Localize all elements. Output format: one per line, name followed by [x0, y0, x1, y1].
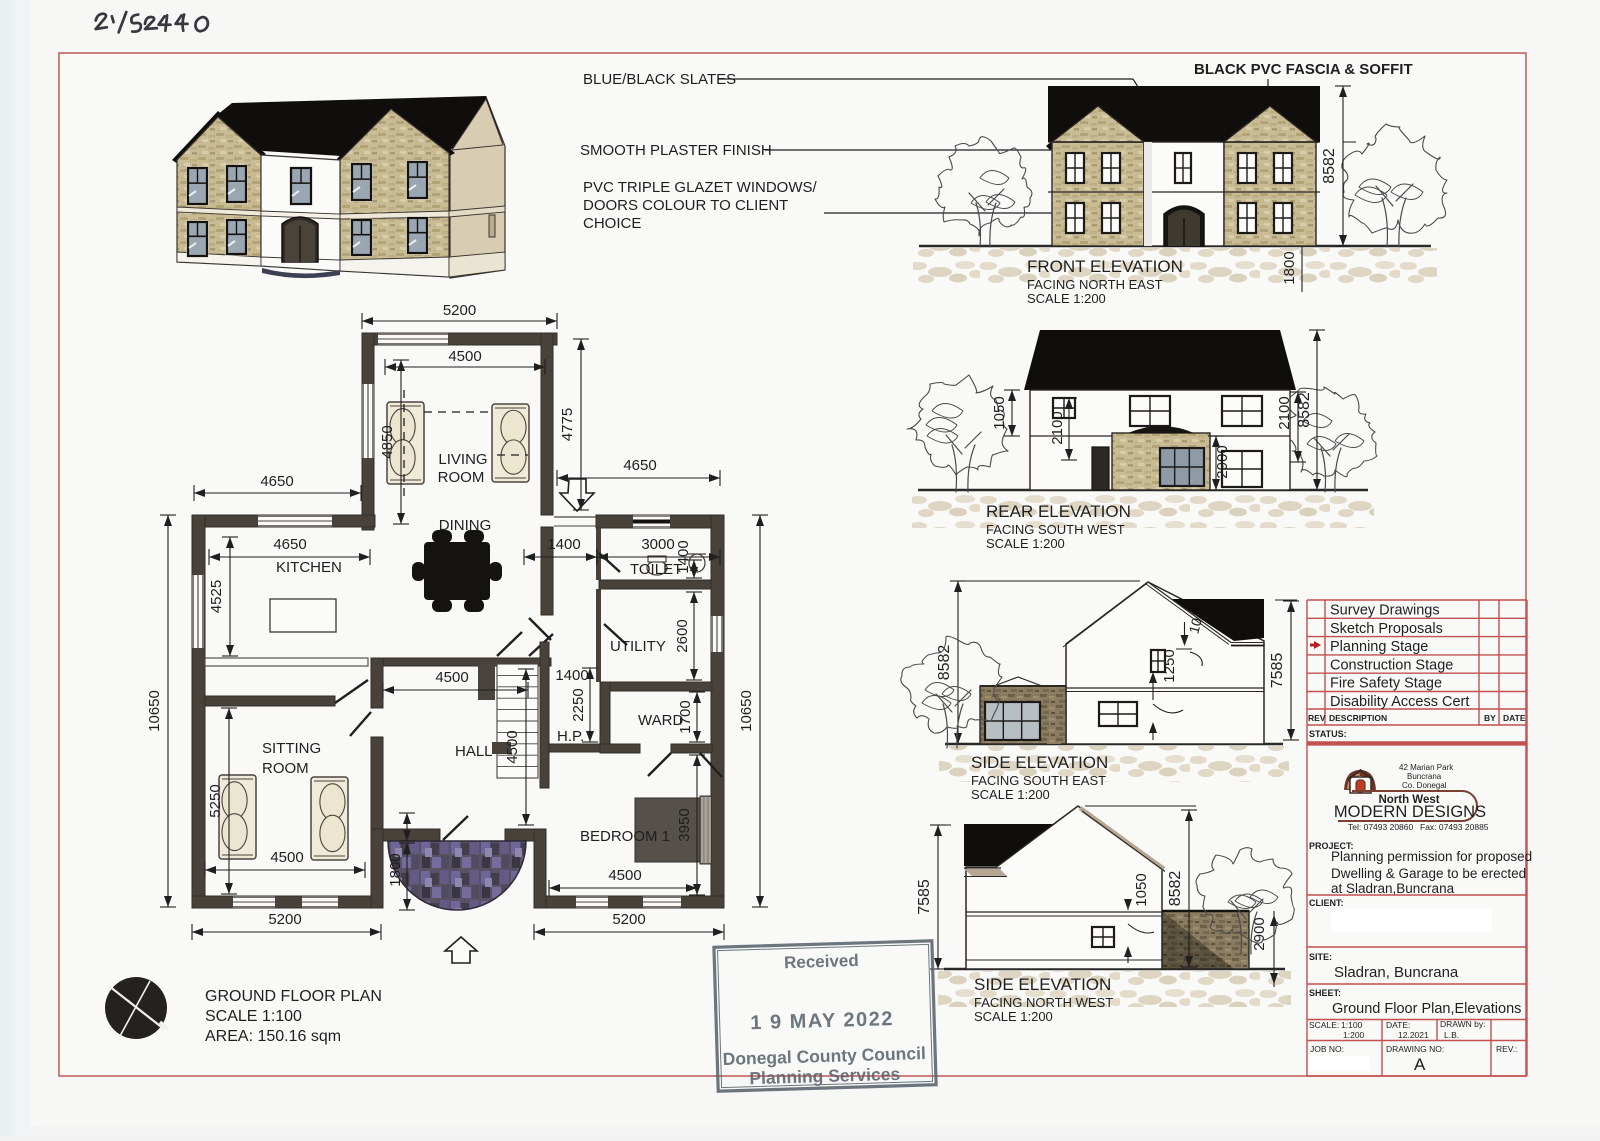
svg-text:BLUE/BLACK SLATES: BLUE/BLACK SLATES	[583, 71, 736, 88]
svg-text:BEDROOM 1: BEDROOM 1	[580, 828, 670, 845]
svg-text:DINING: DINING	[439, 517, 492, 534]
svg-text:4500: 4500	[448, 348, 481, 365]
svg-text:2900: 2900	[1214, 445, 1231, 478]
svg-text:REAR ELEVATION: REAR ELEVATION	[986, 502, 1131, 521]
svg-text:DRAWN by:: DRAWN by:	[1440, 1019, 1486, 1029]
svg-text:10650: 10650	[146, 690, 163, 732]
svg-text:DATE: DATE	[1503, 713, 1526, 723]
svg-text:Planning Stage: Planning Stage	[1330, 639, 1428, 655]
svg-text:5200: 5200	[443, 302, 476, 319]
svg-text:Ground Floor Plan,Elevations: Ground Floor Plan,Elevations	[1332, 1001, 1521, 1017]
svg-text:H.P.: H.P.	[557, 728, 584, 745]
svg-text:DRAWING NO:: DRAWING NO:	[1386, 1044, 1444, 1054]
svg-text:4650: 4650	[623, 457, 656, 474]
svg-text:ROOM: ROOM	[262, 760, 309, 777]
svg-text:REV.:: REV.:	[1496, 1044, 1517, 1054]
svg-text:JOB NO:: JOB NO:	[1310, 1044, 1344, 1054]
svg-text:4500: 4500	[435, 669, 468, 686]
svg-text:2600: 2600	[674, 619, 691, 652]
svg-text:4650: 4650	[273, 536, 306, 553]
svg-text:DOORS COLOUR TO CLIENT: DOORS COLOUR TO CLIENT	[583, 197, 788, 214]
svg-text:SCALE 1:200: SCALE 1:200	[1027, 291, 1106, 306]
svg-text:A: A	[1414, 1055, 1426, 1074]
svg-text:CLIENT:: CLIENT:	[1309, 898, 1344, 908]
svg-text:1400: 1400	[555, 667, 588, 684]
svg-text:FRONT ELEVATION: FRONT ELEVATION	[1027, 257, 1183, 276]
svg-text:KITCHEN: KITCHEN	[276, 559, 342, 576]
svg-text:42 Marian Park: 42 Marian Park	[1399, 763, 1454, 772]
svg-text:at Sladran,Buncrana: at Sladran,Buncrana	[1331, 881, 1455, 896]
svg-text:SCALE 1:100: SCALE 1:100	[205, 1008, 302, 1025]
svg-text:8582: 8582	[1167, 871, 1184, 907]
svg-text:2100: 2100	[1049, 411, 1066, 444]
svg-text:2100: 2100	[1276, 396, 1293, 429]
svg-text:1400: 1400	[675, 540, 692, 573]
svg-text:GROUND FLOOR PLAN: GROUND FLOOR PLAN	[205, 988, 382, 1005]
svg-text:SIDE ELEVATION: SIDE ELEVATION	[971, 753, 1108, 772]
svg-text:Sketch Proposals: Sketch Proposals	[1330, 621, 1443, 637]
svg-text:Fire Safety Stage: Fire Safety Stage	[1330, 676, 1442, 692]
svg-text:1800: 1800	[387, 853, 404, 886]
svg-text:1:100: 1:100	[1341, 1020, 1363, 1030]
svg-text:CHOICE: CHOICE	[583, 215, 641, 232]
svg-text:SITTING: SITTING	[262, 740, 321, 757]
svg-text:BLACK PVC FASCIA & SOFFIT: BLACK PVC FASCIA & SOFFIT	[1194, 61, 1413, 78]
svg-text:DESCRIPTION: DESCRIPTION	[1329, 713, 1387, 723]
svg-text:Planning permission for propos: Planning permission for proposed	[1331, 849, 1532, 864]
svg-text:BY: BY	[1484, 713, 1496, 723]
svg-text:DATE:: DATE:	[1386, 1020, 1410, 1030]
svg-text:1250: 1250	[1161, 649, 1178, 682]
svg-text:SCALE 1:200: SCALE 1:200	[974, 1009, 1053, 1024]
svg-text:1 9 MAY 2022: 1 9 MAY 2022	[750, 1008, 894, 1034]
svg-text:Sladran, Buncrana: Sladran, Buncrana	[1334, 964, 1459, 981]
svg-text:SHEET:: SHEET:	[1309, 988, 1341, 998]
svg-text:1800: 1800	[1281, 251, 1298, 284]
svg-text:1400: 1400	[547, 536, 580, 553]
svg-text:Construction Stage: Construction Stage	[1330, 657, 1453, 673]
svg-text:SIDE ELEVATION: SIDE ELEVATION	[974, 975, 1111, 994]
svg-text:PVC TRIPLE GLAZET WINDOWS/: PVC TRIPLE GLAZET WINDOWS/	[583, 179, 817, 196]
svg-text:4500: 4500	[270, 849, 303, 866]
svg-text:SITE:: SITE:	[1309, 952, 1332, 962]
svg-text:Buncrana: Buncrana	[1407, 772, 1442, 781]
svg-text:1:200: 1:200	[1343, 1030, 1365, 1040]
svg-text:SCALE 1:200: SCALE 1:200	[971, 787, 1050, 802]
svg-text:5250: 5250	[207, 784, 224, 817]
svg-text:4775: 4775	[559, 408, 576, 441]
svg-text:7585: 7585	[916, 879, 933, 915]
svg-text:AREA: 150.16 sqm: AREA: 150.16 sqm	[205, 1028, 341, 1045]
svg-text:1050: 1050	[1133, 873, 1150, 906]
svg-text:Dwelling & Garage to be erecte: Dwelling & Garage to be erected	[1331, 866, 1526, 881]
svg-text:1700: 1700	[677, 700, 694, 733]
svg-text:4500: 4500	[608, 867, 641, 884]
svg-text:REV: REV	[1308, 713, 1326, 723]
svg-text:FACING NORTH EAST: FACING NORTH EAST	[1027, 277, 1163, 292]
svg-text:4650: 4650	[260, 473, 293, 490]
svg-text:UTILITY: UTILITY	[610, 638, 666, 655]
svg-text:4850: 4850	[379, 425, 396, 458]
svg-text:FACING NORTH WEST: FACING NORTH WEST	[974, 995, 1113, 1010]
svg-text:SCALE:: SCALE:	[1309, 1020, 1339, 1030]
svg-text:Survey Drawings: Survey Drawings	[1330, 603, 1440, 619]
svg-text:SCALE 1:200: SCALE 1:200	[986, 536, 1065, 551]
svg-text:LIVING: LIVING	[438, 451, 487, 468]
svg-text:4525: 4525	[208, 580, 225, 613]
svg-text:8582: 8582	[936, 645, 953, 681]
svg-text:FACING SOUTH EAST: FACING SOUTH EAST	[971, 773, 1106, 788]
svg-text:12.2021: 12.2021	[1398, 1030, 1429, 1040]
svg-text:3950: 3950	[676, 808, 693, 841]
svg-text:1050: 1050	[991, 396, 1008, 429]
svg-text:SMOOTH PLASTER FINISH: SMOOTH PLASTER FINISH	[580, 142, 772, 159]
svg-text:Received: Received	[784, 951, 859, 972]
svg-text:FACING SOUTH WEST: FACING SOUTH WEST	[986, 522, 1125, 537]
svg-text:ROOM: ROOM	[438, 469, 485, 486]
svg-text:8582: 8582	[1296, 392, 1313, 428]
svg-text:5200: 5200	[268, 911, 301, 928]
svg-text:8582: 8582	[1321, 148, 1338, 184]
svg-text:Co. Donegal: Co. Donegal	[1402, 781, 1447, 790]
svg-text:3000: 3000	[641, 536, 674, 553]
svg-text:HALL: HALL	[455, 743, 493, 760]
svg-text:5200: 5200	[612, 911, 645, 928]
svg-text:MODERN DESIGNS: MODERN DESIGNS	[1334, 803, 1486, 821]
svg-text:2250: 2250	[570, 688, 587, 721]
svg-text:Tel: 07493 20860: Tel: 07493 20860	[1348, 822, 1413, 832]
svg-text:STATUS:: STATUS:	[1309, 729, 1347, 739]
svg-text:L.B.: L.B.	[1444, 1030, 1459, 1040]
svg-text:10650: 10650	[738, 690, 755, 732]
svg-text:4500: 4500	[504, 730, 521, 763]
svg-text:Disability Access Cert: Disability Access Cert	[1330, 694, 1469, 710]
svg-text:7585: 7585	[1269, 653, 1286, 689]
svg-text:Fax: 07493 20885: Fax: 07493 20885	[1420, 822, 1489, 832]
